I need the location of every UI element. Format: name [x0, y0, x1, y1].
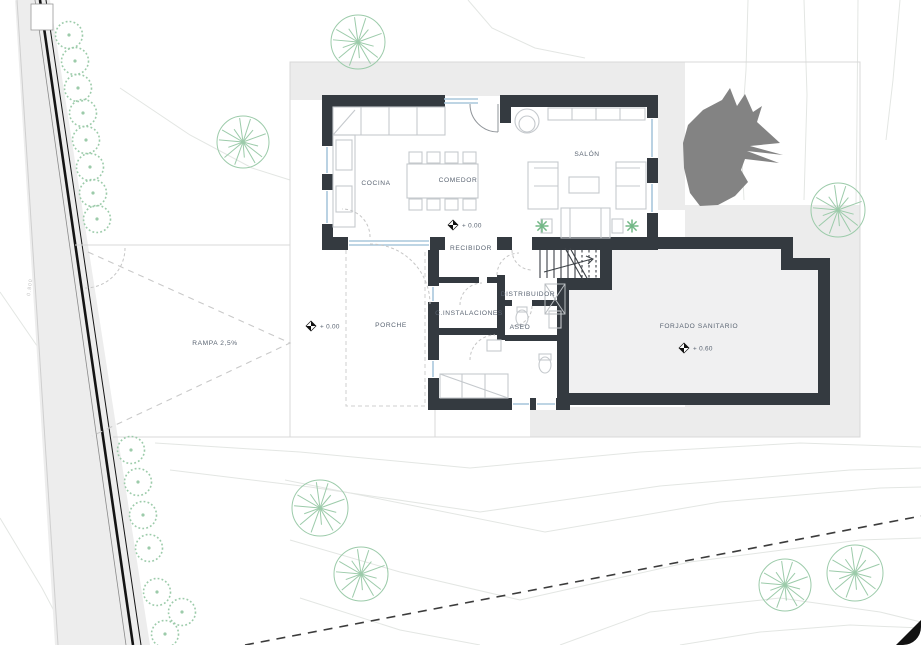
wall-top-kitchen: [322, 95, 445, 107]
contour-line-12: [290, 538, 921, 600]
road-surface: [15, 0, 150, 645]
terrace-east-strip: [658, 100, 685, 210]
wall-wing-west: [428, 250, 439, 410]
contour-line-10: [170, 468, 921, 512]
contour-line-11: [285, 480, 921, 532]
plant-icon: [626, 220, 639, 233]
tree-icon: [334, 547, 388, 601]
level-value: + 0.00: [320, 324, 340, 331]
wall-south-3: [497, 237, 512, 250]
room-label-salon: SALÓN: [574, 149, 599, 158]
tree-icon: [759, 559, 811, 611]
ramp-label: RAMPA 2,5%: [192, 340, 237, 347]
road: [15, 0, 150, 645]
rock-outcrop-shape: [683, 88, 783, 206]
room-label-aseo: ASEO: [510, 324, 531, 331]
room-label-cocina: COCINA: [361, 180, 390, 187]
contour-line-3: [856, 0, 858, 204]
wall-top-salon: [500, 95, 658, 107]
wall-instalaciones-south: [439, 328, 505, 335]
tree-icon: [217, 116, 269, 168]
level-value: + 0.00: [462, 223, 482, 230]
room-label-recibidor: RECIBIDOR: [450, 245, 492, 252]
contour-line-15: [680, 625, 921, 645]
tree-icon: [827, 545, 883, 601]
wall-south-2: [430, 237, 445, 250]
entry-recess: [443, 96, 500, 107]
tree-icon: [331, 15, 385, 69]
wall-south-4: [532, 237, 658, 250]
contour-line-9: [155, 443, 921, 468]
terrace-south-strip: [530, 407, 685, 437]
floor-plan-drawing: COCINACOMEDORSALÓNRECIBIDORDISTRIBUIDORC…: [0, 0, 921, 645]
level-value: + 0.60: [693, 346, 713, 353]
gate-pillar: [31, 4, 53, 30]
contour-line-14: [560, 598, 921, 645]
wall-bath-div: [505, 335, 565, 341]
room-label-distribuidor: DISTRIBUIDOR: [501, 291, 555, 298]
wall-recibidor-div-a: [439, 277, 479, 283]
forjado-sanitario-block: [557, 237, 830, 405]
site-plan-canvas: COCINACOMEDORSALÓNRECIBIDORDISTRIBUIDORC…: [0, 0, 921, 645]
boundary-dashed-line: [245, 516, 921, 645]
wall-aseo-div-b: [532, 300, 565, 306]
room-label-comedor: COMEDOR: [439, 177, 478, 184]
room-label-forjado: FORJADO SANITARIO: [660, 323, 739, 330]
room-label-porche: PORCHE: [375, 322, 407, 329]
wall-entry-post: [500, 95, 511, 123]
road-label: 0.800: [26, 278, 34, 296]
ramp-direction-chevron: [88, 252, 290, 436]
contour-line-5: [468, 0, 585, 58]
contour-line-2: [804, 0, 807, 200]
plant-icon: [536, 220, 549, 233]
level-marker-2: + 0.00: [306, 321, 340, 331]
room-label-instalaciones: C.INSTALACIONES: [435, 310, 503, 317]
contour-line-4: [886, 0, 900, 140]
wall-aseo-div-a: [505, 300, 512, 306]
wall-corridor-b: [497, 300, 505, 340]
wall-south-1: [322, 237, 348, 250]
corner-dark-wedge: [896, 620, 921, 645]
main-interior: [333, 107, 647, 237]
porch-door-arc: [370, 244, 430, 304]
